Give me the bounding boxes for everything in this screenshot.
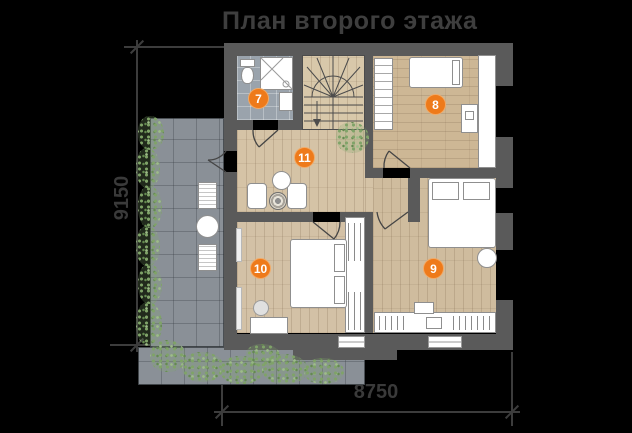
window-symbol xyxy=(338,336,365,348)
terrace-table xyxy=(196,215,219,238)
shrub xyxy=(262,354,308,384)
sun-lounger xyxy=(198,182,217,209)
floor-plan-canvas: План второго этажа 9150 8750 xyxy=(0,0,632,433)
desk-symbol xyxy=(250,317,288,334)
built-in-closet-symbol xyxy=(478,55,496,168)
wall-segment xyxy=(496,43,513,86)
shower-symbol xyxy=(260,57,293,90)
shrub xyxy=(182,352,224,382)
radiator-symbol xyxy=(236,228,242,262)
pouf-symbol xyxy=(253,300,269,316)
shrub xyxy=(138,186,162,228)
shrub xyxy=(136,226,160,266)
sun-lounger xyxy=(198,244,217,271)
armchair-symbol xyxy=(247,183,267,209)
double-bed-symbol xyxy=(290,239,347,308)
stool-symbol xyxy=(272,171,291,190)
wall-segment xyxy=(408,178,420,222)
shelf-lines xyxy=(379,316,405,330)
shrub xyxy=(150,340,186,372)
wall-segment xyxy=(237,212,313,222)
room-marker-11[interactable]: 11 xyxy=(294,147,315,168)
radiator-symbol xyxy=(236,287,242,330)
wall-segment xyxy=(365,55,373,178)
shrub xyxy=(136,302,162,346)
desk-symbol xyxy=(461,104,478,133)
potted-plant-symbol xyxy=(336,122,369,153)
plan-title: План второго этажа xyxy=(222,7,477,36)
wall-segment xyxy=(278,120,302,130)
dimension-line-horizontal xyxy=(214,411,520,413)
drawer-symbol xyxy=(426,317,442,329)
wall-segment xyxy=(373,168,383,178)
pillow-symbol xyxy=(452,60,460,85)
shelf-lines xyxy=(348,292,362,330)
pillow-symbol xyxy=(463,182,490,200)
shelf-lines xyxy=(348,223,362,261)
wall-segment xyxy=(293,55,302,130)
room-marker-10[interactable]: 10 xyxy=(250,258,271,279)
room-marker-8[interactable]: 8 xyxy=(425,94,446,115)
room-marker-9[interactable]: 9 xyxy=(423,258,444,279)
toilet-tank-symbol xyxy=(240,59,255,67)
double-bed-symbol xyxy=(428,178,496,248)
wall-segment xyxy=(496,137,513,188)
coffee-table-symbol xyxy=(269,192,287,210)
single-bed-symbol xyxy=(409,57,463,88)
room-marker-7[interactable]: 7 xyxy=(248,88,269,109)
chair-symbol xyxy=(414,302,434,314)
wardrobe-symbol xyxy=(345,217,365,333)
dimension-extension-right xyxy=(511,352,513,426)
shrub xyxy=(304,358,344,384)
shrub xyxy=(138,264,162,304)
wall-segment xyxy=(237,120,253,130)
wall-segment xyxy=(365,212,373,333)
shrub xyxy=(138,116,164,150)
wall-segment xyxy=(224,43,237,151)
wall-segment xyxy=(410,168,496,178)
sink-symbol xyxy=(279,92,293,111)
wardrobe-symbol xyxy=(374,58,393,130)
nightstand-symbol xyxy=(477,248,497,268)
desk-shelf-unit-symbol xyxy=(374,312,496,333)
shrub xyxy=(136,148,160,188)
wall-segment xyxy=(496,213,513,250)
pillow-symbol xyxy=(432,182,459,200)
stairs-direction-arrow xyxy=(313,119,321,127)
wall-segment xyxy=(293,350,397,360)
pillow-symbol xyxy=(334,276,345,304)
wall-segment xyxy=(496,300,513,347)
pillow-symbol xyxy=(334,244,345,272)
shelf-lines xyxy=(453,316,493,330)
toilet-symbol xyxy=(241,67,254,84)
armchair-symbol xyxy=(287,183,307,209)
desk-item-symbol xyxy=(465,111,474,120)
window-symbol xyxy=(428,336,462,348)
staircase-symbol xyxy=(302,55,365,130)
